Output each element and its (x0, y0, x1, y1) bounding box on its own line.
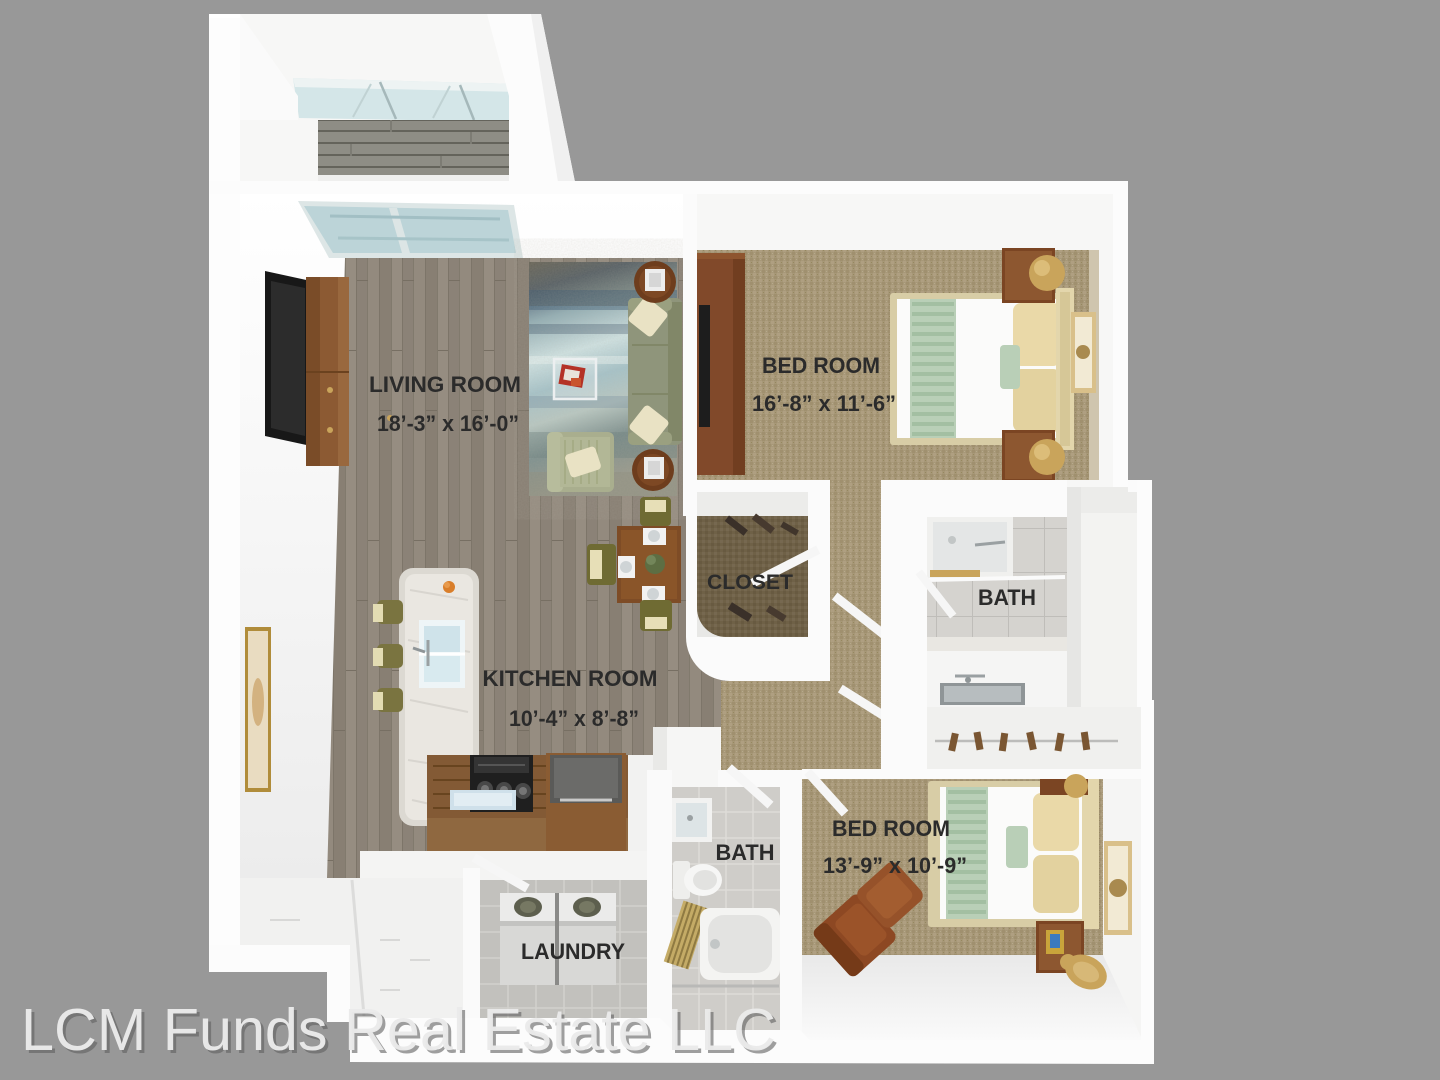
svg-text:BATH: BATH (978, 585, 1036, 610)
svg-text:18’-3” x 16’-0”: 18’-3” x 16’-0” (377, 411, 519, 436)
svg-text:LCM Funds Real Estate LLC: LCM Funds Real Estate LLC (21, 997, 776, 1063)
svg-text:BATH: BATH (716, 840, 775, 865)
svg-text:BED ROOM: BED ROOM (832, 816, 950, 841)
svg-text:LAUNDRY: LAUNDRY (521, 939, 625, 964)
svg-text:13’-9” x 10’-9”: 13’-9” x 10’-9” (823, 853, 967, 878)
svg-text:LIVING ROOM: LIVING ROOM (369, 372, 521, 397)
svg-text:CLOSET: CLOSET (707, 571, 793, 594)
svg-text:KITCHEN ROOM: KITCHEN ROOM (483, 666, 658, 691)
svg-text:16’-8” x 11’-6”: 16’-8” x 11’-6” (752, 391, 896, 416)
svg-text:BED ROOM: BED ROOM (762, 353, 880, 378)
svg-text:10’-4” x 8’-8”: 10’-4” x 8’-8” (509, 706, 639, 731)
